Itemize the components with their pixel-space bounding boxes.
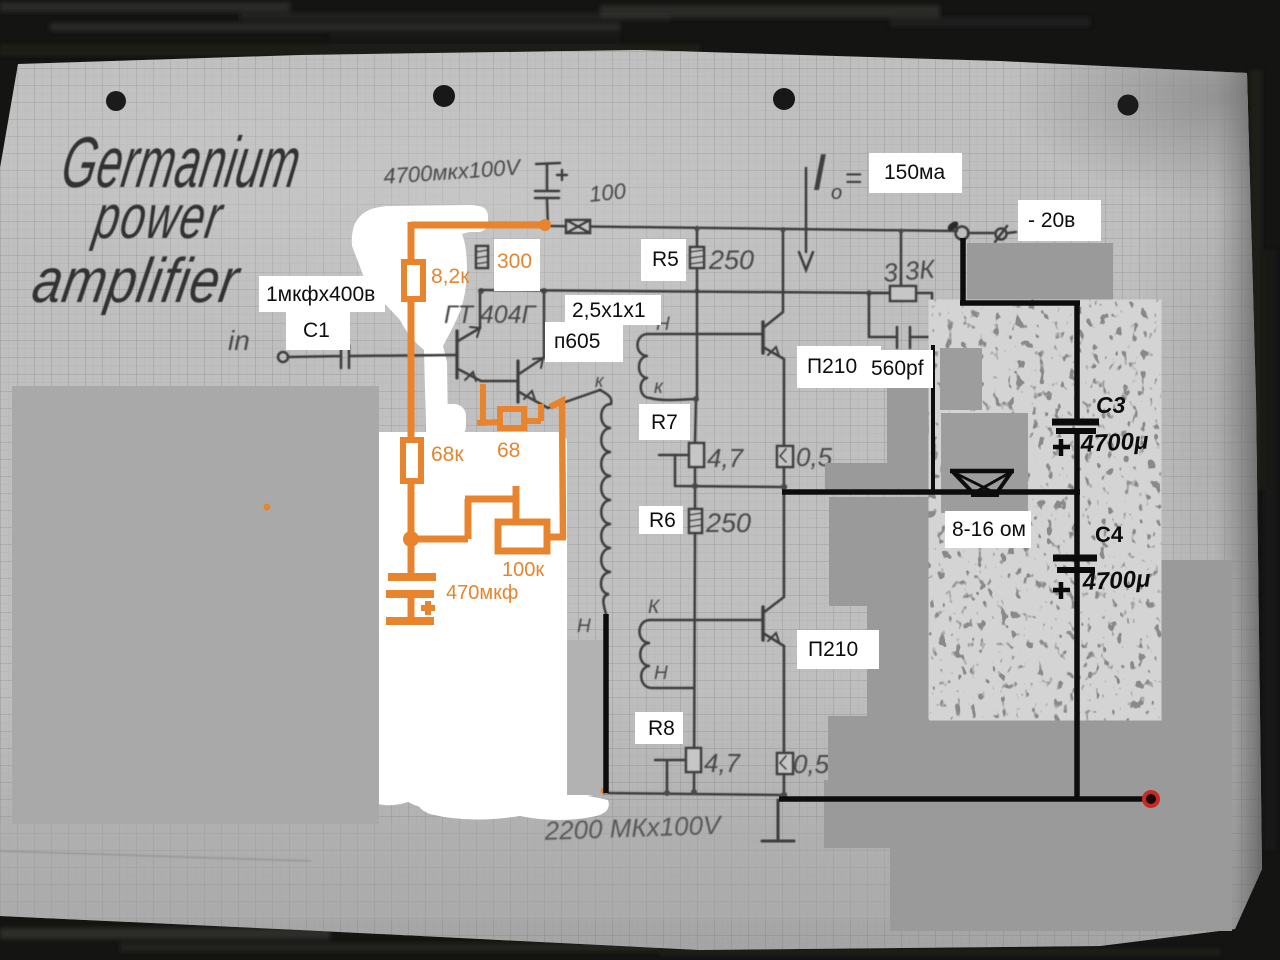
svg-text:150ма: 150ма: [884, 161, 945, 184]
svg-text:4700μ: 4700μ: [1081, 565, 1152, 596]
svg-text:C4: C4: [1095, 522, 1124, 547]
svg-text:R5: R5: [652, 248, 679, 271]
svg-text:C1: C1: [303, 319, 330, 342]
svg-text:4700μ: 4700μ: [1079, 427, 1150, 458]
svg-text:I: I: [812, 144, 826, 202]
svg-text:R6: R6: [649, 509, 676, 532]
svg-text:470мкф: 470мкф: [446, 582, 518, 604]
svg-text:250: 250: [705, 508, 751, 538]
svg-text:ГТ 404Г: ГТ 404Г: [444, 301, 538, 329]
svg-text:R7: R7: [651, 411, 678, 434]
svg-text:2200 МКх100V: 2200 МКх100V: [543, 810, 723, 846]
svg-text:250: 250: [708, 245, 754, 275]
svg-text:8-16 ом: 8-16 ом: [952, 518, 1026, 541]
svg-text:300: 300: [497, 250, 532, 273]
svg-text:4,7: 4,7: [704, 748, 742, 778]
svg-text:П210: П210: [808, 638, 858, 661]
svg-text:power: power: [88, 182, 229, 252]
svg-text:amplifier: amplifier: [28, 246, 247, 316]
svg-text:К: К: [648, 597, 661, 618]
svg-text:o: o: [831, 182, 842, 204]
svg-text:100: 100: [588, 178, 628, 207]
svg-text:=: =: [845, 162, 863, 195]
svg-text:1мкфх400в: 1мкфх400в: [266, 283, 375, 306]
svg-text:68: 68: [497, 439, 520, 462]
svg-text:4,7: 4,7: [707, 443, 745, 473]
svg-text:in: in: [228, 325, 250, 356]
svg-text:100к: 100к: [502, 559, 544, 581]
svg-text:3,3К: 3,3К: [882, 253, 938, 288]
svg-text:Н: Н: [577, 616, 591, 637]
svg-text:560pf: 560pf: [871, 357, 924, 380]
svg-text:- 20в: - 20в: [1028, 209, 1075, 232]
svg-text:0,5: 0,5: [793, 749, 830, 779]
svg-text:П210: П210: [807, 355, 857, 378]
svg-text:68к: 68к: [431, 443, 464, 466]
svg-text:2,5х1х1: 2,5х1х1: [572, 299, 646, 322]
svg-text:п605: п605: [554, 330, 600, 353]
svg-text:8,2к: 8,2к: [431, 265, 470, 288]
svg-text:R8: R8: [648, 717, 675, 740]
svg-text:Н: Н: [654, 663, 668, 684]
svg-text:к: к: [654, 377, 664, 398]
svg-text:C3: C3: [1096, 392, 1126, 418]
